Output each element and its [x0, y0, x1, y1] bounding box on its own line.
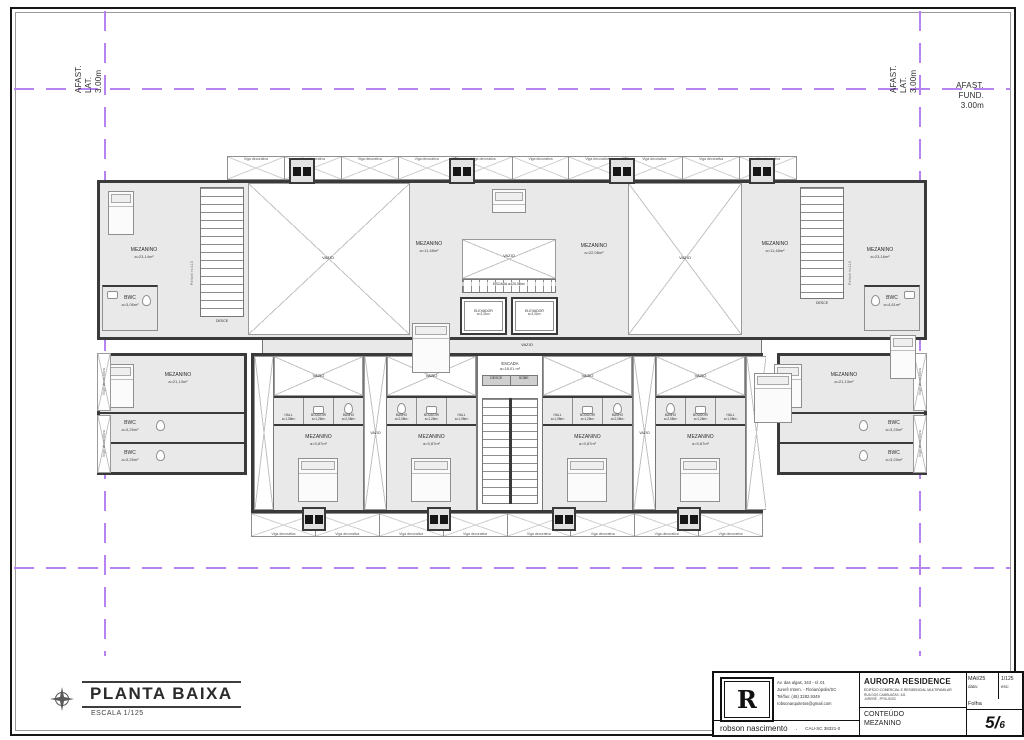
project-city: JURERÊ - FPOLIS/SC	[864, 697, 964, 701]
vazio-label: VAZIO	[655, 255, 715, 260]
vazio-label: VAZIO	[275, 373, 362, 378]
boudoir-cell: BOUDOIRa=1,26m²	[573, 398, 603, 424]
room-area: a=9,87m²	[543, 441, 632, 446]
scale-label: esc:	[1001, 684, 1024, 689]
viga-label: Viga decorativa	[244, 157, 268, 161]
stair-direction-bar: DESCE SOBE	[482, 375, 538, 386]
bedroom: MEZANINO a=9,87m²	[274, 426, 363, 510]
void-column: VAZIO	[633, 356, 656, 510]
room-name: ESCADA	[493, 282, 507, 286]
viga-cell: Viga decorativa	[399, 157, 456, 179]
firm-address: Av. das algas, 343 - sl .01 Jurerê Inter…	[777, 680, 857, 708]
firm-cau: CAU-SC 38321-0	[805, 726, 840, 731]
viga-label: Viga decorativa	[918, 430, 922, 457]
column-cluster	[749, 158, 775, 184]
viga-strip-side: Viga decorativa	[97, 415, 111, 473]
firm-name: robson nascimento	[720, 724, 788, 733]
bwc-room-tr: BWC a=4,61m²	[864, 285, 920, 331]
elevator-label: ELEVADOR a=3,31m²	[462, 309, 505, 317]
hall-cell: HALLa=1,08m²	[716, 398, 745, 424]
sink-icon	[904, 291, 915, 299]
viga-label: Viga decorativa	[642, 157, 666, 161]
viga-cell: Viga decorativa	[683, 157, 740, 179]
sheet-number-main: 5/	[985, 713, 999, 733]
column-cluster	[609, 158, 635, 184]
firm-logo: R	[720, 677, 774, 722]
bedroom: MEZANINO a=9,87m²	[543, 426, 632, 510]
toilet-icon	[859, 450, 868, 461]
room-area: a=21,13m²	[142, 379, 214, 384]
viga-label: Viga decorativa	[591, 532, 615, 536]
column-cluster	[677, 507, 701, 531]
desce-label: DESCE	[798, 301, 846, 305]
apartment-module: VAZIO HALLa=1,08m² BOUDOIRa=1,26m² BANHO…	[274, 356, 364, 510]
afast-line: AFAST.	[889, 65, 898, 93]
column-cluster	[449, 158, 475, 184]
room-area: a=9,87m²	[656, 441, 745, 446]
room-label-mezanino-tl: MEZANINO a=23,14m²	[102, 247, 186, 259]
afast-line: AFAST.	[74, 65, 83, 93]
room-label-mezanino-mr: MEZANINO a=21,13m²	[808, 372, 880, 384]
sobe-label: SOBE	[511, 376, 538, 385]
room-area: a=2,08m²	[395, 418, 409, 422]
fixture-strip: HALLa=1,08m² BOUDOIRa=1,26m² BANHOa=2,08…	[274, 396, 363, 426]
elevator-left: ELEVADOR a=3,31m²	[460, 297, 507, 335]
fixture-strip: BANHOa=2,08m² BOUDOIRa=1,26m² HALLa=1,08…	[656, 396, 745, 426]
bed-icon	[411, 458, 451, 502]
room-label-mezanino-low: MEZANINO a=9,87m²	[274, 434, 363, 446]
afast-line: FUND.	[924, 91, 984, 101]
scale-cell: 1/125 esc:	[1001, 676, 1024, 689]
viga-label: Viga decorativa	[102, 430, 106, 457]
apartment-module: VAZIO BANHOa=2,08m² BOUDOIRa=1,26m² HALL…	[656, 356, 746, 510]
project-name: AURORA RESIDENCE	[864, 677, 964, 686]
room-area: a=3,31m²	[513, 313, 556, 317]
room-label-mezanino-tr2: MEZANINO a=23,16m²	[838, 247, 922, 259]
viga-label: Viga decorativa	[399, 532, 423, 536]
room-area: a=3,25m²	[108, 427, 152, 432]
room-area: a=1,08m²	[551, 418, 565, 422]
column-cluster	[552, 507, 576, 531]
viga-label: Viga decorativa	[527, 532, 551, 536]
bed-icon	[492, 189, 526, 213]
column-cluster	[302, 507, 326, 531]
sheet-number-sub: 6	[999, 720, 1005, 731]
room-label-mezanino-low: MEZANINO a=9,87m²	[543, 434, 632, 446]
viga-label: Viga decorativa	[102, 368, 106, 395]
drawing-title-block: PLANTA BAIXA ESCALA 1/125	[50, 681, 241, 717]
wall	[780, 412, 924, 414]
viga-cell: Viga decorativa	[342, 157, 399, 179]
afast-lat-right-label: AFAST. LAT. 3.00m	[889, 27, 919, 93]
escada-upper-label: ESCADA a=20,06m²	[462, 282, 556, 286]
bed-icon	[412, 323, 450, 373]
afast-line: LAT.	[899, 77, 908, 93]
sheet-label: Folha	[968, 701, 1022, 707]
void-area: VAZIO	[656, 356, 745, 396]
scale-value: 1/125	[1001, 676, 1024, 682]
wall	[100, 412, 244, 414]
fixture-strip: BANHOa=2,08m² BOUDOIRa=1,26m² HALLa=1,08…	[387, 396, 476, 426]
project-info: AURORA RESIDENCE EDIFÍCIO COMERCIAL E RE…	[864, 677, 964, 701]
sink-icon	[107, 291, 118, 299]
conteudo-label: CONTEÚDO	[864, 711, 964, 718]
apartment-module: VAZIO HALLa=1,08m² BOUDOIRa=1,26m² BANHO…	[543, 356, 633, 510]
afast-line: LAT.	[84, 77, 93, 93]
elevator-right: ELEVADOR a=3,31m²	[511, 297, 558, 335]
column-cluster	[427, 507, 451, 531]
room-label-mezanino-low: MEZANINO a=9,87m²	[387, 434, 476, 446]
core-void	[462, 239, 556, 279]
toilet-icon	[156, 420, 165, 431]
vazio-label: VAZIO	[370, 431, 380, 435]
desce-label: DESCE	[198, 319, 246, 323]
bed-icon	[298, 458, 338, 502]
wall	[100, 442, 244, 444]
firm-row: robson nascimento . CAU-SC 38321-0	[714, 720, 859, 736]
hall-cell: HALLa=1,08m²	[447, 398, 476, 424]
viga-cell: Viga decorativa	[571, 514, 635, 536]
vazio-label: VAZIO	[298, 255, 358, 260]
viga-label: Viga decorativa	[335, 532, 359, 536]
plan-title: PLANTA BAIXA	[82, 681, 241, 708]
void-column	[254, 356, 274, 510]
room-area: a=9,87m²	[274, 441, 363, 446]
bed-icon	[108, 191, 134, 235]
room-area: a=23,16m²	[838, 254, 922, 259]
stair-rail	[509, 398, 512, 504]
viga-label: Viga decorativa	[699, 157, 723, 161]
core: VAZIO ESCADA a=20,06m² ELEVADOR a=3,31m²	[460, 183, 560, 337]
room-area: a=1,26m²	[312, 418, 326, 422]
stair-left	[200, 187, 244, 317]
room-label-mezanino-tr1: MEZANINO a=11,48m²	[746, 241, 804, 253]
setback-line-top	[14, 88, 1010, 90]
afast-fund-label: AFAST. FUND. 3.00m	[924, 81, 984, 111]
hall-cell: HALLa=1,08m²	[543, 398, 573, 424]
room-area: a=2,08m²	[664, 418, 678, 422]
viga-cell: Viga decorativa	[699, 514, 762, 536]
vazio-label: VAZIO	[462, 253, 556, 258]
room-area: a=3,31m²	[462, 313, 505, 317]
compass-icon	[50, 687, 74, 711]
viga-label: Viga decorativa	[918, 368, 922, 395]
boudoir-cell: BOUDOIRa=1,26m²	[686, 398, 716, 424]
elevator-label: ELEVADOR a=3,31m²	[513, 309, 556, 317]
room-label-mezanino-tc: MEZANINO a=22,08m²	[564, 243, 624, 255]
lower-block: VAZIO HALLa=1,08m² BOUDOIRa=1,26m² BANHO…	[251, 353, 763, 513]
column-cluster	[289, 158, 315, 184]
room-area: a=1,26m²	[425, 418, 439, 422]
room-area: a=3,25m²	[872, 427, 916, 432]
room-label-mezanino-low: MEZANINO a=9,87m²	[656, 434, 745, 446]
viga-label: Viga decorativa	[472, 157, 496, 161]
void-area: VAZIO	[543, 356, 632, 396]
vazio-label: VAZIO	[388, 373, 475, 378]
afast-line: AFAST.	[924, 81, 984, 91]
viga-label: Viga decorativa	[528, 157, 552, 161]
date-value: MAI/25	[968, 676, 996, 682]
conteudo-cell: CONTEÚDO MEZANINO	[864, 711, 964, 727]
void-column: VAZIO	[364, 356, 387, 510]
room-label-bwc: BWC a=3,25m²	[872, 420, 916, 432]
bwc-room-tl: BWC a=3,06m²	[102, 285, 158, 331]
room-label-bwc: BWC a=3,25m²	[872, 450, 916, 462]
room-area: a=22,08m²	[564, 250, 624, 255]
room-area: a=1,08m²	[282, 418, 296, 422]
divider	[859, 707, 966, 708]
toilet-icon	[859, 420, 868, 431]
boudoir-cell: BOUDOIRa=1,26m²	[417, 398, 447, 424]
room-area: a=9,87m²	[387, 441, 476, 446]
vazio-label: VAZIO	[639, 431, 649, 435]
viga-strip-side: Viga decorativa	[913, 415, 927, 473]
room-area: a=3,25m²	[108, 457, 152, 462]
room-area: a=18,01 m²	[478, 366, 542, 371]
room-label-bwc: BWC a=3,25m²	[108, 420, 152, 432]
viga-strip-side: Viga decorativa	[97, 353, 111, 411]
banho-cell: BANHOa=2,08m²	[656, 398, 686, 424]
setback-line-bottom	[14, 567, 1010, 569]
room-area: a=3,25m²	[872, 457, 916, 462]
room-area: a=2,08m²	[611, 418, 625, 422]
viga-label: Viga decorativa	[271, 532, 295, 536]
toilet-icon	[142, 295, 151, 306]
fixture-strip: HALLa=1,08m² BOUDOIRa=1,26m² BANHOa=2,08…	[543, 396, 632, 426]
room-area: a=11,48m²	[746, 248, 804, 253]
address-line: Tel/fax: (48) 3282.9349	[777, 694, 857, 701]
plan-scale: ESCALA 1/125	[82, 710, 241, 717]
vazio-label: VAZIO	[544, 373, 631, 378]
room-area: a=1,26m²	[581, 418, 595, 422]
wall	[780, 442, 924, 444]
project-subtitle: EDIFÍCIO COMERCIAL E RESIDENCIAL MULTIFA…	[864, 688, 964, 692]
vazio-label: VAZIO	[497, 342, 557, 347]
central-stair: ESCADA a=18,01 m² DESCE SOBE	[477, 356, 543, 510]
conteudo-value: MEZANINO	[864, 720, 964, 727]
room-area: a=21,13m²	[808, 379, 880, 384]
viga-cell: Viga decorativa	[228, 157, 285, 179]
afast-line: 3.00m	[909, 70, 918, 93]
afast-line: 3.00m	[924, 101, 984, 111]
desce-label: DESCE	[483, 376, 511, 385]
apartment-module: VAZIO BANHOa=2,08m² BOUDOIRa=1,26m² HALL…	[387, 356, 477, 510]
firm-separator: .	[796, 726, 798, 732]
bed-icon	[567, 458, 607, 502]
room-label-mezanino-ml: MEZANINO a=21,13m²	[142, 372, 214, 384]
address-line: robsonarquitetos@gmail.com	[777, 701, 857, 708]
afast-line: 3.00m	[94, 70, 103, 93]
room-label-mezanino-lc: MEZANINO a=11,48m²	[398, 241, 460, 253]
sheet-label-cell: Folha	[968, 701, 1022, 707]
viga-cell: Viga decorativa	[444, 514, 508, 536]
bedroom: MEZANINO a=9,87m²	[387, 426, 476, 510]
void-area: VAZIO	[274, 356, 363, 396]
left-wing: MEZANINO a=21,13m² BWC a=3,25m² BWC a=3,…	[97, 353, 247, 475]
date-label: data:	[968, 684, 996, 689]
viga-label: Viga decorativa	[463, 532, 487, 536]
address-line: Jurerê Intern. - Florianópolis/SC	[777, 687, 857, 694]
title-block: R Av. das algas, 343 - sl .01 Jurerê Int…	[712, 671, 1024, 737]
bedroom: MEZANINO a=9,87m²	[656, 426, 745, 510]
viga-cell: Viga decorativa	[513, 157, 570, 179]
room-area: a=11,48m²	[398, 248, 460, 253]
bed-icon	[680, 458, 720, 502]
banho-cell: BANHOa=2,08m²	[387, 398, 417, 424]
room-area: a=1,08m²	[455, 418, 469, 422]
escada-lower-label: ESCADA a=18,01 m²	[478, 361, 542, 372]
viga-label: Viga decorativa	[655, 532, 679, 536]
date-cell: MAI/25 data:	[968, 676, 996, 689]
peitoril-label: Peitoril h=110	[190, 211, 194, 285]
bed-icon	[754, 373, 792, 423]
vazio-label: VAZIO	[657, 373, 744, 378]
sheet-number-cell: 5/ 6	[966, 710, 1024, 735]
banho-cell: BANHOa=2,08m²	[334, 398, 363, 424]
room-area: a=2,08m²	[342, 418, 356, 422]
divider	[859, 673, 860, 735]
hall-cell: HALLa=1,08m²	[274, 398, 304, 424]
room-area: a=1,26m²	[694, 418, 708, 422]
viga-label: Viga decorativa	[585, 157, 609, 161]
floor-plan: Viga decorativa Viga decorativa Viga dec…	[97, 154, 927, 546]
banho-cell: BANHOa=2,08m²	[603, 398, 632, 424]
address-line: Av. das algas, 343 - sl .01	[777, 680, 857, 687]
stair-right	[800, 187, 844, 299]
upper-band: MEZANINO a=23,14m² BWC a=3,06m² Peitoril…	[97, 180, 927, 340]
viga-label: Viga decorativa	[415, 157, 439, 161]
firm-logo-letter: R	[737, 685, 757, 714]
room-area: a=20,06m²	[508, 282, 525, 286]
room-area: a=1,08m²	[724, 418, 738, 422]
afast-lat-left-label: AFAST. LAT. 3.00m	[74, 27, 104, 93]
room-label-bwc: BWC a=3,25m²	[108, 450, 152, 462]
toilet-icon	[156, 450, 165, 461]
viga-label: Viga decorativa	[719, 532, 743, 536]
bed-icon	[890, 335, 916, 379]
boudoir-cell: BOUDOIRa=1,26m²	[304, 398, 334, 424]
viga-label: Viga decorativa	[358, 157, 382, 161]
room-area: a=23,14m²	[102, 254, 186, 259]
toilet-icon	[871, 295, 880, 306]
sheet-frame: AFAST. LAT. 3.00m AFAST. LAT. 3.00m AFAS…	[10, 7, 1016, 736]
divider	[998, 673, 999, 699]
